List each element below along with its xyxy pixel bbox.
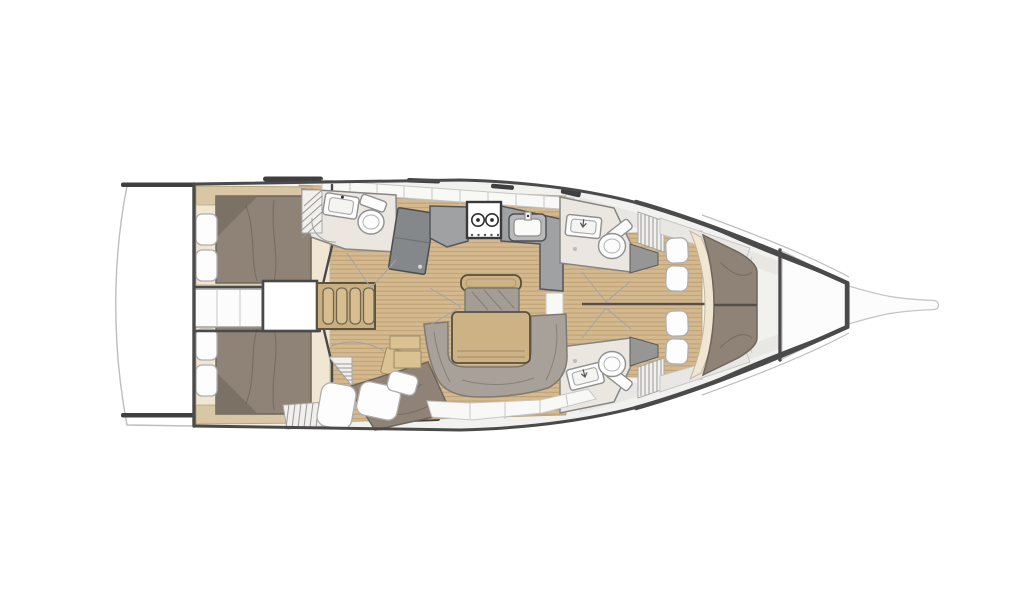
sink-icon — [565, 214, 602, 239]
side-table — [394, 351, 421, 368]
galley-sink-icon — [509, 212, 546, 241]
floor-plan-canvas — [0, 0, 1024, 600]
centerline-bench — [461, 275, 521, 314]
stove-icon — [467, 202, 501, 238]
sink-icon — [322, 192, 359, 219]
saloon-table — [452, 312, 530, 363]
louver-locker-icon — [302, 190, 322, 238]
bowsprit — [849, 286, 939, 324]
companionway-hatch — [263, 281, 317, 331]
side-table — [390, 336, 420, 349]
companionway-ladder — [317, 283, 375, 329]
yacht-floor-plan — [0, 0, 1024, 600]
